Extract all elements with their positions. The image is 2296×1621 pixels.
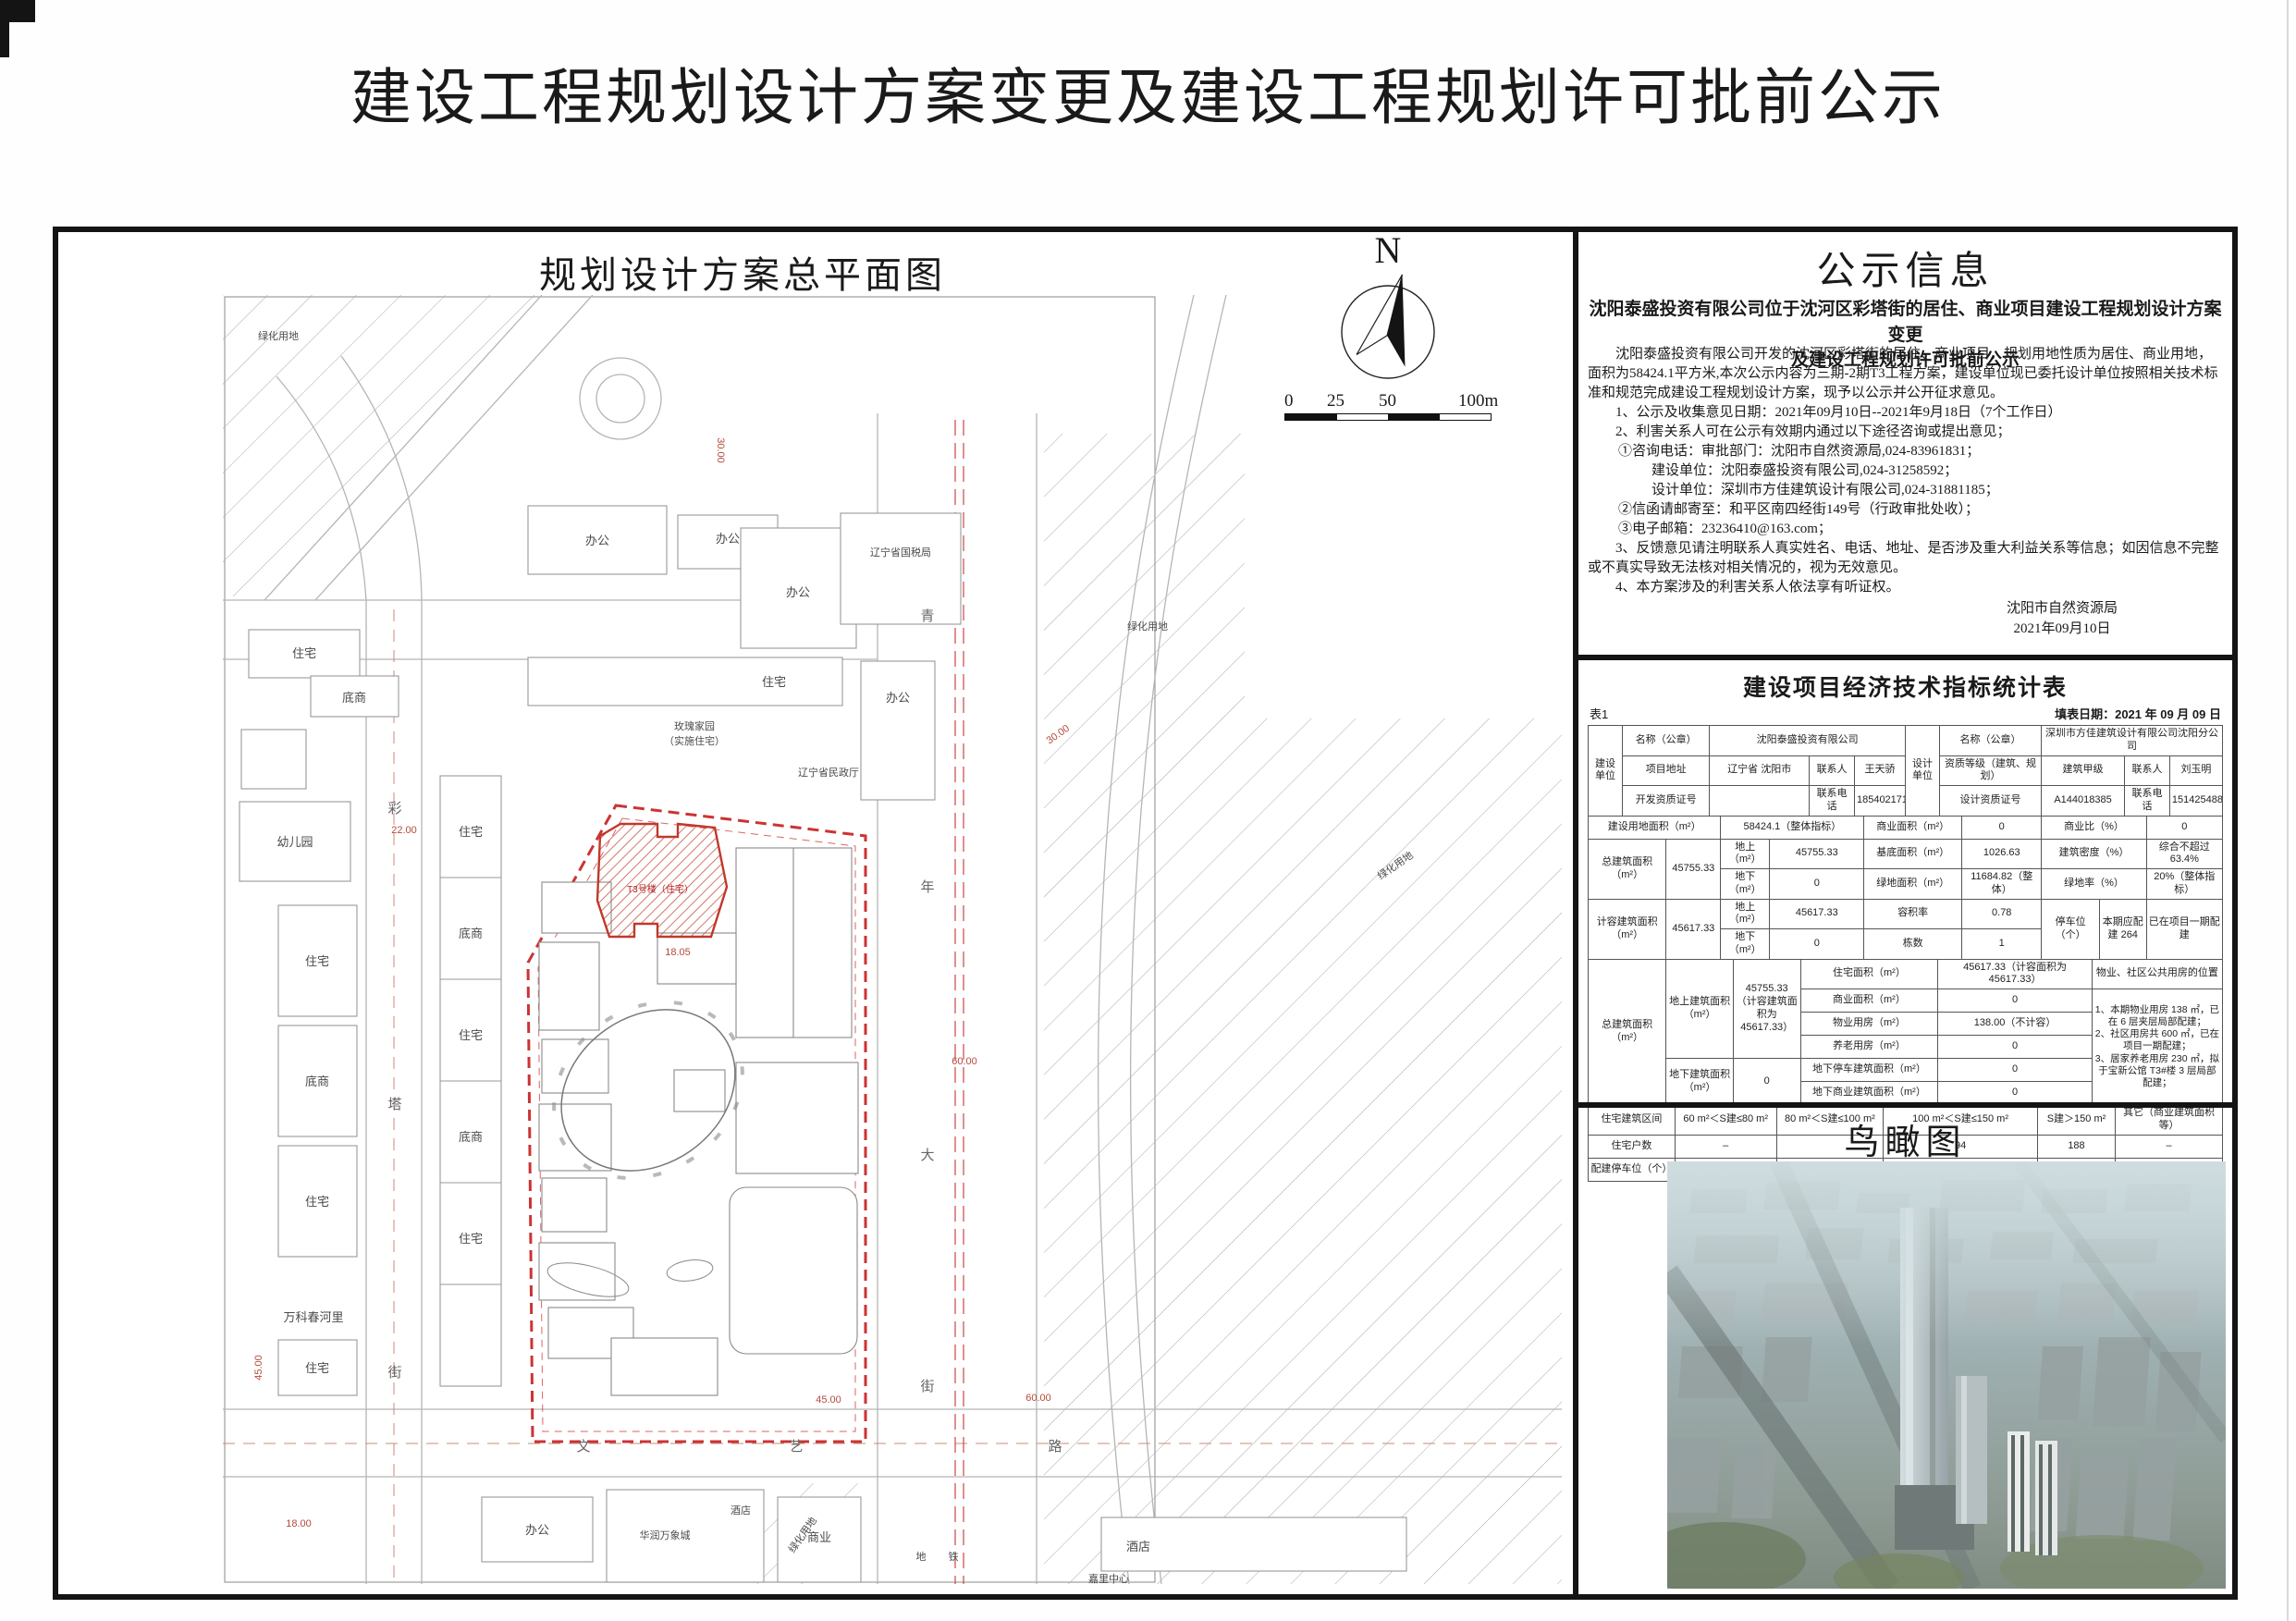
dim-18: 18.00 — [286, 1518, 312, 1529]
notice-item-2-1c: 设计单位：深圳市方佳建筑设计有限公司,024-31881185； — [1588, 481, 2224, 500]
cell: 地上建筑面积（m²） — [1666, 959, 1734, 1059]
notice-item-2: 2、利害关系人可在公示有效期内通过以下途径咨询或提出意见； — [1588, 423, 2224, 442]
birdview-rendering — [1667, 1161, 2226, 1589]
dim-22: 22.00 — [391, 825, 417, 836]
cell: 养老用房（m²） — [1800, 1036, 1938, 1059]
birdview-image — [1667, 1161, 2226, 1589]
dim-60: 60.00 — [952, 1056, 977, 1067]
cell: 0 — [1938, 1059, 2093, 1082]
notice-item-2-1b: 建设单位：沈阳泰盛投资有限公司,024-31258592； — [1588, 461, 2224, 481]
label-office: 办公 — [525, 1523, 549, 1537]
table-meta: 表1 填表日期：2021 年 09 月 09 日 — [1588, 705, 2223, 723]
cell: 0.78 — [1962, 899, 2042, 929]
cell: 王天骄 — [1854, 755, 1905, 786]
label-shop: 底商 — [305, 1075, 329, 1088]
birdview-section: 鸟瞰图 — [1578, 1108, 2232, 1594]
cell: 联系电话 — [1810, 786, 1855, 817]
cell: 138.00（不计容） — [1938, 1013, 2093, 1036]
cell: 地上（m²） — [1721, 839, 1770, 869]
cell: 设计资质证号 — [1940, 786, 2042, 817]
indicator-table-section: 建设项目经济技术指标统计表 表1 填表日期：2021 年 09 月 09 日 建… — [1578, 660, 2232, 1102]
notice-sheet: 建设工程规划设计方案变更及建设工程规划许可批前公示 规划设计方案总平面图 N 0… — [0, 0, 2296, 1621]
site-plan-svg: T3号楼（住宅） 18.05 住宅 底商 幼儿园 住宅 底商 住宅 万科春河里 … — [223, 295, 1562, 1584]
cell: 辽宁省 沈阳市 — [1710, 755, 1810, 786]
cell: 名称（公章） — [1940, 726, 2042, 756]
table-fill-date: 填表日期：2021 年 09 月 09 日 — [2055, 705, 2221, 722]
cell: 物业、社区公共用房的位置 — [2092, 959, 2222, 989]
cell: 建筑甲级 — [2042, 755, 2125, 786]
label-kindergarten: 幼儿园 — [276, 835, 313, 849]
label-residential: 住宅 — [305, 954, 329, 968]
label-office: 办公 — [786, 585, 810, 599]
notice-section: 公示信息 沈阳泰盛投资有限公司位于沈河区彩塔街的居住、商业项目建设工程规划设计方… — [1578, 232, 2232, 655]
cell: 18540217100 — [1854, 786, 1905, 817]
cell: 0 — [1770, 869, 1864, 900]
cell: 地下建筑面积（m²） — [1666, 1059, 1734, 1105]
notice-subtitle-line1: 沈阳泰盛投资有限公司位于沈河区彩塔街的居住、商业项目建设工程规划设计方案变更 — [1584, 297, 2227, 348]
cell: 商业面积（m²） — [1864, 816, 1962, 839]
label-residential: 住宅 — [459, 825, 483, 839]
notice-issue-date: 2021年09月10日 — [1923, 619, 2201, 639]
cell: 1 — [1962, 929, 2042, 960]
cell: 45617.33 — [1770, 899, 1864, 929]
label-hotel: 酒店 — [731, 1504, 751, 1517]
table-areas-block: 建设用地面积（m²） 58424.1（整体指标） 商业面积（m²） 0 商业比（… — [1588, 816, 2223, 960]
cell: 沈阳泰盛投资有限公司 — [1710, 726, 1906, 756]
cell: 0 — [1962, 816, 2042, 839]
cell: 45617.33 — [1666, 899, 1721, 959]
cell: 刘玉明 — [2169, 755, 2222, 786]
dim-45: 45.00 — [816, 1394, 841, 1406]
page-title: 建设工程规划设计方案变更及建设工程规划许可批前公示 — [0, 48, 2296, 137]
notice-item-1: 1、公示及收集意见日期：2021年09月10日--2021年9月18日（7个工作… — [1588, 403, 2224, 423]
cell: A144018385 — [2042, 786, 2125, 817]
notice-body: 沈阳泰盛投资有限公司开发的沈河区彩塔街的居住、商业项目，规划用地性质为居住、商业… — [1588, 345, 2224, 597]
cell: 商业面积（m²） — [1800, 989, 1938, 1013]
cell: 地上（m²） — [1721, 899, 1770, 929]
label-wanke: 万科春河里 — [283, 1310, 343, 1324]
cell: 0 — [1938, 989, 2093, 1013]
street-caitajie: 彩 — [387, 801, 401, 817]
pond-2 — [666, 1258, 715, 1284]
cell: 0 — [2146, 816, 2222, 839]
cell: 已在项目一期配建 — [2146, 899, 2222, 959]
cell: 综合不超过 63.4% — [2146, 839, 2222, 869]
label-shop: 底商 — [459, 1130, 483, 1144]
label-residential: 住宅 — [305, 1361, 329, 1375]
cell: 1026.63 — [1962, 839, 2042, 869]
cell: 45755.33（计容建筑面积为45617.33） — [1733, 959, 1800, 1059]
table-header-block: 建设单位 名称（公章） 沈阳泰盛投资有限公司 设计单位 名称（公章） 深圳市方佳… — [1588, 725, 2223, 817]
street-wenyi: 文 — [576, 1439, 590, 1455]
cell: 20%（整体指标） — [2146, 869, 2222, 900]
cell: 名称（公章） — [1623, 726, 1710, 756]
cell: 商业比（%） — [2042, 816, 2146, 839]
label-office: 办公 — [886, 691, 910, 705]
label-green: 绿化用地 — [258, 329, 299, 342]
site-plan-drawing: T3号楼（住宅） 18.05 住宅 底商 幼儿园 住宅 底商 住宅 万科春河里 … — [223, 295, 1562, 1584]
t3-building-label: T3号楼（住宅） — [627, 883, 694, 895]
cell: 建设用地面积（m²） — [1589, 816, 1721, 839]
street-wenyi: 路 — [1048, 1439, 1062, 1455]
label-office: 办公 — [716, 532, 740, 546]
cell: 0 — [1733, 1059, 1800, 1105]
cell: 地下停车建筑面积（m²） — [1800, 1059, 1938, 1082]
notice-issuer-block: 沈阳市自然资源局 2021年09月10日 — [1923, 598, 2201, 639]
street-wenyi: 艺 — [789, 1439, 803, 1455]
notice-issuer: 沈阳市自然资源局 — [1923, 598, 2201, 619]
notice-title: 公示信息 — [1578, 239, 2232, 296]
cell-builder: 建设单位 — [1589, 726, 1623, 817]
label-metro: 铁 — [949, 1551, 959, 1563]
notice-intro: 沈阳泰盛投资有限公司开发的沈河区彩塔街的居住、商业项目，规划用地性质为居住、商业… — [1588, 345, 2224, 403]
table-title: 建设项目经济技术指标统计表 — [1578, 669, 2232, 703]
cell: 联系电话 — [2125, 786, 2170, 817]
cell: 总建筑面积（m²） — [1589, 959, 1666, 1105]
cell: 住宅面积（m²） — [1800, 959, 1938, 989]
surrounding-buildings-west — [239, 630, 501, 1395]
cell: 建筑密度（%） — [2042, 839, 2146, 869]
main-frame: 规划设计方案总平面图 N 0 25 50 100m — [53, 227, 2238, 1600]
cell: 0 — [1938, 1036, 2093, 1059]
dim-45: 45.00 — [253, 1355, 264, 1381]
label-tax-bureau: 辽宁省国税局 — [870, 546, 931, 559]
notice-item-2-2: ②信函请邮寄至：和平区南四经街149号（行政审批处收）； — [1588, 500, 2224, 520]
cell: 地下（m²） — [1721, 869, 1770, 900]
sheet-edge-line — [2287, 0, 2289, 1621]
cell: 联系人 — [1810, 755, 1855, 786]
label-shop: 底商 — [459, 927, 483, 940]
right-panel: 公示信息 沈阳泰盛投资有限公司位于沈河区彩塔街的居住、商业项目建设工程规划设计方… — [1578, 232, 2232, 1594]
street-caitajie: 街 — [387, 1365, 401, 1381]
cell-designer: 设计单位 — [1905, 726, 1939, 817]
hatch-clear-area — [1245, 432, 1562, 718]
label-residential: 住宅 — [762, 675, 786, 689]
cell: 深圳市方佳建筑设计有限公司沈阳分公司 — [2042, 726, 2223, 756]
cell: 45617.33（计容面积为45617.33） — [1938, 959, 2093, 989]
street-qingnian: 大 — [920, 1148, 934, 1163]
cell: 地下（m²） — [1721, 929, 1770, 960]
cell: 本期应配建 264 — [2099, 899, 2146, 959]
label-hotel: 酒店 — [1126, 1540, 1150, 1553]
street-qingnian: 青 — [920, 608, 934, 624]
dim-18-05: 18.05 — [665, 947, 691, 958]
label-jiali: 嘉里中心 — [1088, 1572, 1129, 1584]
notice-item-2-1: ①咨询电话：审批部门：沈阳市自然资源局,024-83961831； — [1588, 442, 2224, 461]
cell: 基底面积（m²） — [1864, 839, 1962, 869]
cell: 0 — [1938, 1082, 2093, 1105]
label-green: 绿化用地 — [1127, 620, 1168, 632]
cell: 58424.1（整体指标） — [1721, 816, 1864, 839]
cell: 计容建筑面积（m²） — [1589, 899, 1666, 959]
cell: 45755.33 — [1770, 839, 1864, 869]
cell: 绿地率（%） — [2042, 869, 2146, 900]
label-civil-affairs: 辽宁省民政厅 — [798, 766, 859, 779]
label-residential: 住宅 — [459, 1028, 483, 1042]
notice-item-3: 3、反馈意见请注明联系人真实姓名、电话、地址、是否涉及重大利益关系等信息；如因信… — [1588, 539, 2224, 578]
cell: 联系人 — [2125, 755, 2170, 786]
label-shop: 底商 — [342, 691, 366, 705]
cell: 停车位（个） — [2042, 899, 2099, 959]
cell: 项目地址 — [1623, 755, 1710, 786]
site-plan-title: 规划设计方案总平面图 — [373, 245, 1112, 299]
cell: 栋数 — [1864, 929, 1962, 960]
cell: 11684.82（整体） — [1962, 869, 2042, 900]
label-hrmall: 华润万象城 — [640, 1529, 691, 1541]
label-residential: 住宅 — [292, 646, 316, 660]
dim-60: 60.00 — [1025, 1393, 1051, 1404]
cell: 0 — [1770, 929, 1864, 960]
label-rose-garden-sub: （实施住宅） — [664, 734, 725, 747]
cell: 地下商业建筑面积（m²） — [1800, 1082, 1938, 1105]
street-qingnian: 街 — [920, 1379, 934, 1394]
cell: 开发资质证号 — [1623, 786, 1710, 817]
cell: 容积率 — [1864, 899, 1962, 929]
cell: 15142548882 — [2169, 786, 2222, 817]
cell: 总建筑面积（m²） — [1589, 839, 1666, 899]
notice-item-4: 4、本方案涉及的利害关系人依法享有听证权。 — [1588, 578, 2224, 597]
cell: 资质等级（建筑、规划） — [1940, 755, 2042, 786]
dim-30: 30.00 — [715, 437, 726, 463]
cell-position-notes: 1、本期物业用房 138 ㎡，已在 6 层夹层局部配建； 2、社区用房共 600… — [2092, 989, 2222, 1105]
cell — [1710, 786, 1810, 817]
cell: 45755.33 — [1666, 839, 1721, 899]
birdview-title: 鸟瞰图 — [1578, 1113, 2232, 1164]
label-residential: 住宅 — [305, 1195, 329, 1209]
label-rose-garden: 玫瑰家园 — [674, 719, 715, 732]
street-qingnian: 年 — [920, 879, 934, 895]
notice-item-2-3: ③电子邮箱：23236410@163.com； — [1588, 520, 2224, 539]
label-residential: 住宅 — [459, 1232, 483, 1246]
label-metro: 地 — [916, 1551, 927, 1563]
table-breakdown-block: 总建筑面积（m²） 地上建筑面积（m²） 45755.33（计容建筑面积为456… — [1588, 959, 2223, 1106]
street-caitajie: 塔 — [387, 1097, 401, 1112]
cell: 物业用房（m²） — [1800, 1013, 1938, 1036]
t3-building — [597, 824, 727, 937]
table-tag: 表1 — [1590, 705, 1608, 722]
cell: 绿地面积（m²） — [1864, 869, 1962, 900]
label-office: 办公 — [585, 534, 609, 547]
